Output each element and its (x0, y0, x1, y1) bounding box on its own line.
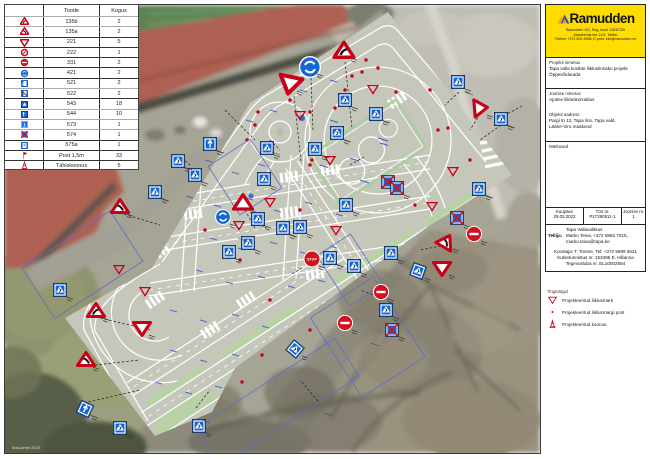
svg-text:Maa-amet 2023: Maa-amet 2023 (12, 445, 41, 450)
